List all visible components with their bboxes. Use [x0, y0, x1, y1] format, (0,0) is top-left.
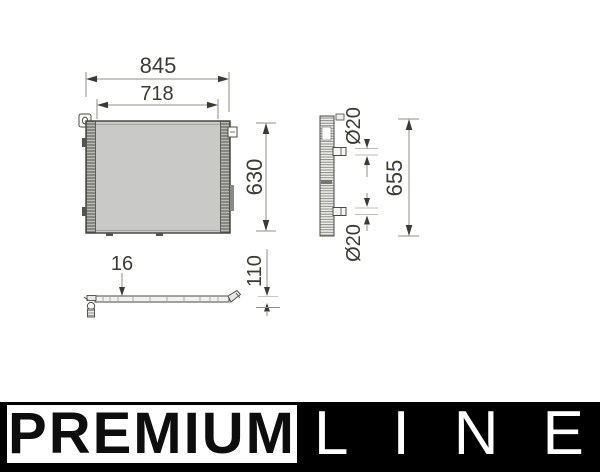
arrow-down-icon: [263, 220, 270, 231]
right-connector: [228, 291, 241, 303]
radiator-core: [86, 121, 230, 233]
arrow-down-icon: [264, 287, 270, 296]
dim-110: 110: [244, 249, 280, 316]
left-fitting-upper: [82, 138, 87, 147]
premium-label: PREMIUM: [8, 405, 296, 463]
dim-o20-bottom-label: Ø20: [343, 224, 365, 262]
technical-drawing: 845 718: [0, 0, 600, 400]
arrow-right-icon: [218, 76, 229, 83]
left-tank: [87, 122, 96, 233]
line-label: LINE: [314, 402, 600, 466]
dim-655-label: 655: [382, 160, 407, 197]
arrow-up-icon: [364, 216, 370, 225]
front-view: 845 718: [79, 53, 276, 236]
arrow-up-icon: [406, 119, 413, 130]
dim-port-top: Ø20: [343, 107, 378, 177]
foot-left: [106, 233, 113, 236]
dim-630: 630: [242, 123, 276, 231]
dim-port-bottom: Ø20: [343, 193, 378, 262]
dim-655: 655: [382, 119, 419, 236]
radiator-drawing-svg: 845 718: [0, 0, 600, 400]
bottom-port: [333, 208, 346, 216]
arrow-right-icon: [207, 102, 218, 109]
bottom-view: 16 110: [84, 249, 280, 317]
dim-630-label: 630: [242, 159, 267, 196]
radiator-front-body: [79, 114, 237, 236]
dim-16: 16: [111, 253, 133, 296]
dim-o20-top-label: Ø20: [343, 107, 365, 145]
arrow-left-icon: [97, 102, 108, 109]
right-edge-fins: [230, 185, 234, 211]
premium-label-box: PREMIUM: [4, 402, 300, 466]
arrow-left-icon: [86, 76, 97, 83]
left-connector: [84, 296, 96, 318]
dim-16-label: 16: [111, 253, 133, 275]
arrow-down-icon: [406, 225, 413, 236]
arrow-up-icon: [263, 123, 270, 134]
dim-718: 718: [97, 83, 218, 119]
dim-110-label: 110: [244, 255, 266, 287]
side-view: Ø20 Ø20 655: [320, 107, 419, 262]
dim-718-label: 718: [140, 83, 173, 105]
left-fitting-lower: [82, 207, 87, 216]
top-port: [333, 148, 346, 156]
foot-right: [156, 233, 163, 236]
arrow-down-icon: [119, 287, 125, 296]
dim-845-label: 845: [140, 53, 177, 78]
top-profile-body: [95, 296, 229, 302]
right-tank: [221, 122, 230, 233]
premium-line-banner: PREMIUM LINE: [0, 402, 600, 472]
arrow-down-icon: [364, 198, 370, 207]
arrow-up-icon: [364, 156, 370, 165]
